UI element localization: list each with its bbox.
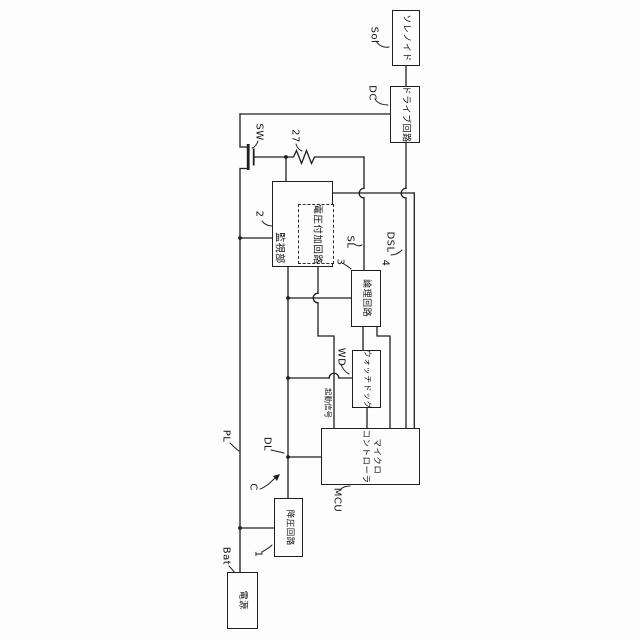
ref-1: 1 <box>253 551 264 558</box>
ref-c: C <box>248 483 259 490</box>
resistor-27 <box>286 151 364 164</box>
leader-2 <box>262 221 272 226</box>
block-buck-converter: 降圧回路 <box>274 498 303 557</box>
block-power-supply: 電源 <box>227 572 258 629</box>
wire-pl-top <box>240 114 247 147</box>
block-watchdog-label: ウォッチドッグ <box>361 349 372 409</box>
junction-dot <box>286 296 290 300</box>
block-drive-circuit: ドライブ回路 <box>390 86 420 143</box>
block-logic-circuit: 論理回路 <box>351 270 381 327</box>
leader-dl <box>271 450 284 453</box>
block-drive-circuit-label: ドライブ回路 <box>399 86 411 143</box>
block-logic-circuit-label: 論理回路 <box>360 279 372 317</box>
ref-mcu: MCU <box>332 488 343 512</box>
ref-4: 4 <box>380 260 391 267</box>
ref-bat: Bat <box>221 547 232 565</box>
block-mcu: マイクロ コントローラ <box>321 428 420 485</box>
leader-c-arrow <box>260 477 276 489</box>
block-mcu-label: マイクロ コントローラ <box>359 429 382 483</box>
block-buck-converter-label: 降圧回路 <box>283 509 294 545</box>
leader-1 <box>262 545 272 552</box>
wire-sw-gate <box>255 157 286 181</box>
ref-start-signal: 起動信号 <box>323 388 334 418</box>
junction-dot <box>238 526 242 530</box>
block-power-supply-label: 電源 <box>236 591 248 610</box>
block-watchdog: ウォッチドッグ <box>352 350 381 408</box>
ref-2: 2 <box>254 211 265 218</box>
patent-diagram-canvas: ソレノイド ドライブ回路 監視部 電圧付加回路 論理回路 ウォッチドッグ マイク… <box>0 0 640 640</box>
circuit-wiring <box>0 0 640 640</box>
junction-dot <box>286 455 290 459</box>
junction-dot <box>284 155 288 159</box>
c-arrowhead <box>273 474 280 481</box>
block-voltage-add-circuit: 電圧付加回路 <box>298 204 334 264</box>
sw-transistor-gate-bar <box>253 149 255 166</box>
ref-sw: SW <box>254 123 265 140</box>
leader-pl <box>230 443 239 451</box>
ref-3: 3 <box>335 259 346 266</box>
ref-dc: DC <box>367 85 378 101</box>
junction-dot <box>286 376 290 380</box>
sw-transistor-channel-bar <box>247 144 250 170</box>
block-monitor-label: 監視部 <box>274 232 289 264</box>
wire-pl-main <box>240 169 247 573</box>
block-solenoid-label: ソレノイド <box>400 14 412 62</box>
block-solenoid: ソレノイド <box>392 10 420 66</box>
junction-dot <box>238 236 242 240</box>
ref-dl: DL <box>262 437 273 451</box>
ref-27: 27 <box>290 129 301 143</box>
ref-sl: SL <box>345 236 356 249</box>
leader-sw <box>252 141 258 148</box>
ref-dsl: DSL <box>385 231 396 252</box>
ref-pl: PL <box>221 430 232 443</box>
ref-sol: Sol <box>369 27 380 44</box>
ref-wd: WD <box>336 348 347 367</box>
block-voltage-add-label: 電圧付加回路 <box>310 204 323 264</box>
